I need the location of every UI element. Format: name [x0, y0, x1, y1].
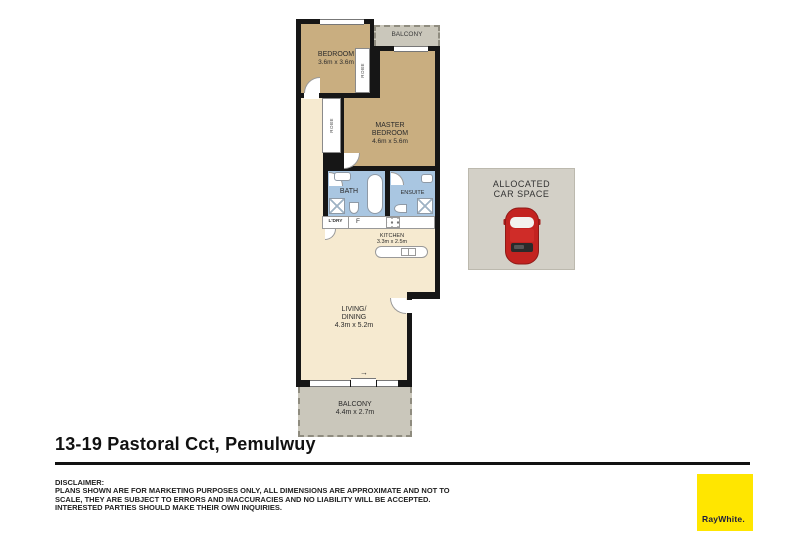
brand-logo: RayWhite.	[697, 474, 753, 531]
bath-toilet	[349, 202, 359, 214]
master-dims: 4.6m x 5.6m	[344, 138, 436, 145]
plan-carve-bottom-right	[412, 299, 440, 387]
disclaimer: DISCLAIMER: PLANS SHOWN ARE FOR MARKETIN…	[55, 479, 457, 512]
living-dining-label: LIVING/ DINING 4.3m x 5.2m	[301, 306, 407, 330]
master-balcony-door	[394, 46, 428, 52]
bedroom-dims: 3.6m x 3.6m	[301, 59, 371, 66]
living-dims: 4.3m x 5.2m	[301, 322, 407, 330]
disclaimer-body: PLANS SHOWN ARE FOR MARKETING PURPOSES O…	[55, 487, 457, 512]
laundry-label: L'DRY	[322, 219, 349, 225]
ensuite-toilet	[394, 204, 407, 213]
ensuite-label: ENSUITE	[390, 190, 435, 196]
car-space-label-2: CAR SPACE	[469, 189, 574, 199]
bedroom-window	[320, 19, 364, 25]
bedroom-name: BEDROOM	[301, 51, 371, 59]
master-bedroom-label: MASTER BEDROOM 4.6m x 5.6m	[344, 122, 436, 146]
master-name-1: MASTER	[344, 122, 436, 130]
bedroom-label: BEDROOM 3.6m x 3.6m	[301, 51, 371, 67]
bath-sink	[334, 172, 351, 181]
ensuite-sink	[421, 174, 433, 183]
island-sink	[401, 248, 416, 256]
title-divider	[55, 462, 750, 465]
floorplan: ROBE ROBE → L'DRY F	[0, 0, 800, 460]
living-balcony-sliding-door	[351, 378, 376, 387]
fridge-label: F	[351, 218, 365, 225]
balcony-top-label: BALCONY	[374, 31, 440, 38]
living-window-right	[377, 380, 398, 387]
bath-shower	[329, 198, 345, 214]
floorplan-page: ROBE ROBE → L'DRY F	[0, 0, 800, 534]
page-title: 13-19 Pastoral Cct, Pemulwuy	[55, 434, 316, 455]
brand-logo-text: RayWhite.	[702, 514, 745, 524]
hallway	[301, 98, 323, 221]
living-window-left	[310, 380, 350, 387]
car-space-label: ALLOCATED CAR SPACE	[469, 179, 574, 200]
car-space-label-1: ALLOCATED	[469, 179, 574, 189]
bedroom-door-opening	[304, 93, 319, 99]
car-space: ALLOCATED CAR SPACE	[468, 168, 575, 270]
robe-hallway: ROBE	[322, 98, 341, 153]
robe-hallway-label: ROBE	[329, 118, 334, 133]
cooktop	[386, 217, 400, 228]
bathtub	[367, 174, 383, 214]
living-name-2: DINING	[301, 314, 407, 322]
car-icon	[503, 207, 541, 265]
room-master-bedroom-upper	[380, 51, 435, 98]
kitchen-dims: 3.3m x 2.5m	[366, 239, 418, 245]
kitchen-label: KITCHEN 3.3m x 2.5m	[366, 233, 418, 246]
bath-label: BATH	[330, 188, 368, 196]
balcony-bottom-label: BALCONY 4.4m x 2.7m	[298, 401, 412, 417]
ensuite-shower	[417, 198, 433, 214]
sliding-door-arrow: →	[356, 368, 372, 377]
master-name-2: BEDROOM	[344, 130, 436, 138]
balcony-bottom-name: BALCONY	[298, 401, 412, 409]
living-name-1: LIVING/	[301, 306, 407, 314]
balcony-bottom-dims: 4.4m x 2.7m	[298, 409, 412, 417]
